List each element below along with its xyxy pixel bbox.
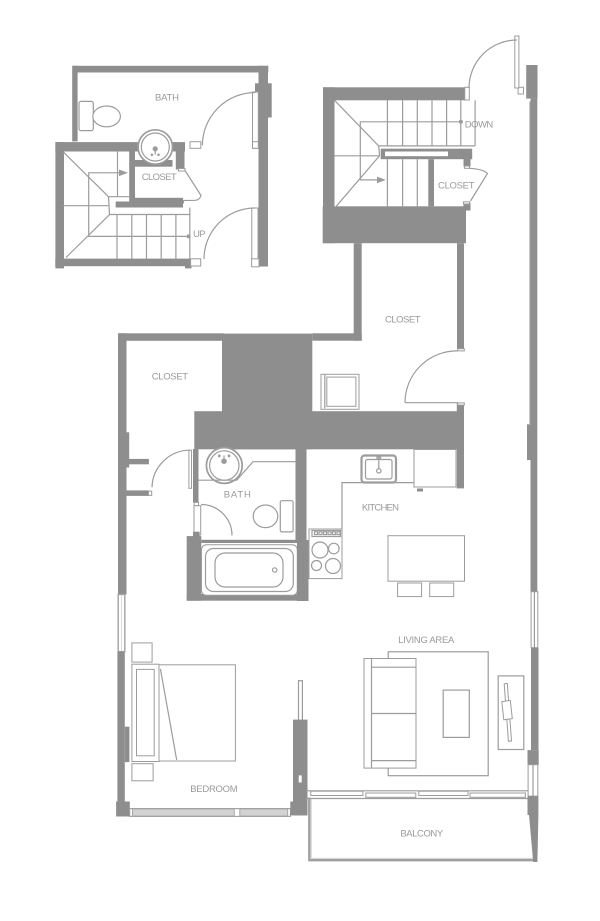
svg-text:CLOSET: CLOSET [438,180,475,191]
svg-text:UP: UP [193,229,206,240]
svg-text:BEDROOM: BEDROOM [190,784,238,795]
svg-text:CLOSET: CLOSET [152,372,188,383]
svg-text:BATH: BATH [224,490,251,501]
svg-text:DOWN: DOWN [465,119,494,130]
svg-text:LIVING AREA: LIVING AREA [398,635,455,646]
svg-text:BALCONY: BALCONY [400,829,443,840]
svg-text:CLOSET: CLOSET [385,315,421,326]
svg-text:KITCHEN: KITCHEN [362,503,399,514]
svg-text:CLOSET: CLOSET [142,172,177,183]
svg-text:BATH: BATH [155,92,179,103]
